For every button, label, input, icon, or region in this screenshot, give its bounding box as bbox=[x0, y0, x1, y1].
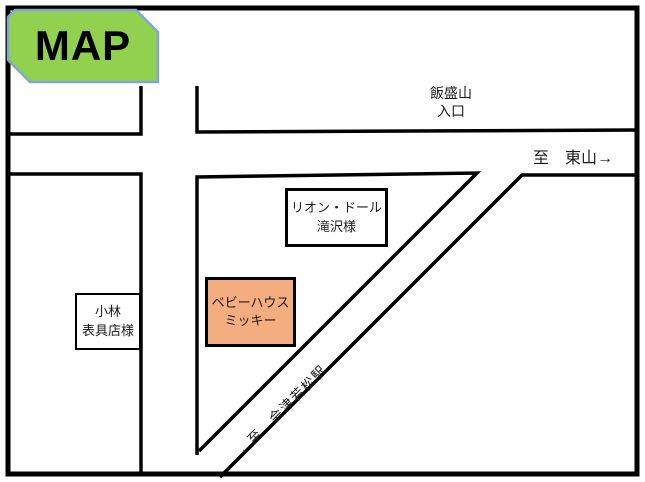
label-iimoriyama-entrance: 飯盛山 入口 bbox=[400, 84, 502, 120]
building-lion-dor-line1: リオン・ドール bbox=[291, 199, 382, 217]
building-baby-house-line1: ベビーハウス bbox=[212, 294, 290, 312]
road-edge-northwest-block bbox=[8, 86, 141, 134]
label-to-higashiyama: 至 東山→ bbox=[533, 144, 613, 168]
building-kobayashi-line2: 表具店様 bbox=[82, 322, 134, 340]
building-kobayashi-hyogu: 小林 表具店様 bbox=[75, 293, 141, 350]
access-map: MAP 飯盛山 入口 至 東山→ ←至 会津若松駅 リオン・ドール 滝沢様 ベビ… bbox=[0, 0, 645, 482]
building-kobayashi-line1: 小林 bbox=[95, 303, 121, 321]
label-iimoriyama-line1: 飯盛山 bbox=[400, 84, 502, 102]
building-lion-dor-takizawa: リオン・ドール 滝沢様 bbox=[285, 188, 388, 247]
building-baby-house-mickey: ベビーハウス ミッキー bbox=[205, 277, 296, 347]
map-title-badge: MAP bbox=[8, 10, 158, 82]
building-baby-house-line2: ミッキー bbox=[224, 312, 276, 330]
building-lion-dor-line2: 滝沢様 bbox=[317, 218, 356, 236]
label-iimoriyama-line2: 入口 bbox=[400, 102, 502, 120]
